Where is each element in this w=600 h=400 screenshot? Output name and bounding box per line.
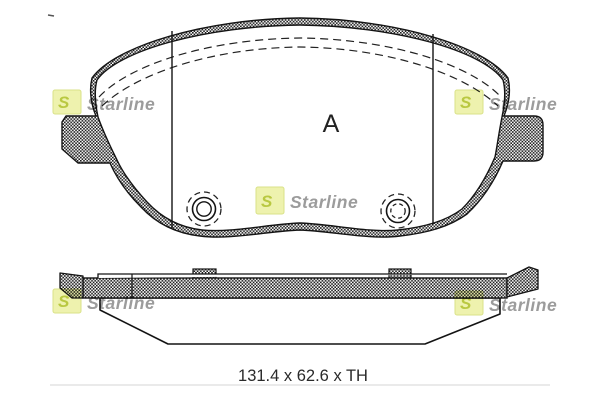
brake-pad-technical-drawing: A S Starline S Starline S Starline <box>0 0 600 400</box>
end-tab-right <box>507 267 538 297</box>
scan-artifact-dash <box>48 15 54 16</box>
starline-logo-initial: S <box>261 192 273 211</box>
hole-right-inner-dashed-circle <box>391 204 405 218</box>
hole-left-inner-circle <box>197 202 211 216</box>
starline-logo-initial: S <box>58 93 70 112</box>
starline-watermark-text: Starline <box>87 293 155 313</box>
starline-watermark-text: Starline <box>87 94 155 114</box>
backplate-profile <box>100 298 500 344</box>
hole-left-solid-circle <box>193 198 216 221</box>
guide-hole-right <box>381 194 415 228</box>
drawing-canvas: A S Starline S Starline S Starline <box>0 0 600 400</box>
starline-logo-initial: S <box>460 294 472 313</box>
starline-watermark-text: Starline <box>489 295 557 315</box>
starline-watermark-text: Starline <box>489 94 557 114</box>
hole-right-solid-circle <box>387 200 410 223</box>
starline-watermark-text: Starline <box>290 192 358 212</box>
watermark-top-left: S Starline <box>53 90 155 114</box>
dimension-label: 131.4 x 62.6 x TH <box>238 367 368 385</box>
watermark-top-right: S Starline <box>455 90 557 114</box>
watermark-center: S Starline <box>256 187 358 214</box>
view-label-a: A <box>323 110 340 138</box>
watermark-bottom-right: S Starline <box>455 291 557 315</box>
starline-logo-initial: S <box>58 292 70 311</box>
chamfer-dashed-line-lower <box>102 47 498 106</box>
starline-logo-initial: S <box>460 93 472 112</box>
guide-hole-left <box>187 192 221 226</box>
watermark-bottom-left: S Starline <box>53 289 155 313</box>
